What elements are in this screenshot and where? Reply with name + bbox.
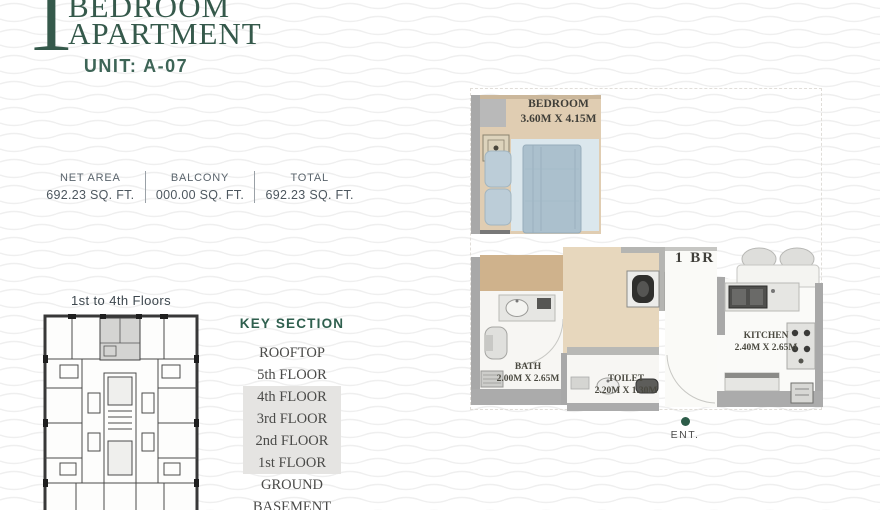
brochure-page: 1 BEDROOM APARTMENT UNIT: A-07 NET AREA … (0, 0, 880, 510)
unit-type-label: 1 BR (659, 249, 731, 269)
room-dimensions: 2.40M X 2.65M (723, 342, 809, 354)
toilet-label: TOILET 2.20M X 1.30M (576, 373, 676, 398)
room-name: BATH (483, 361, 573, 373)
entrance-label: ENT. (655, 429, 715, 441)
kitchen-area (717, 248, 823, 407)
stat-label: TOTAL (257, 172, 362, 184)
key-plan-caption: 1st to 4th Floors (42, 293, 200, 308)
room-name: BEDROOM (511, 97, 606, 112)
entrance-marker: ENT. (655, 417, 715, 441)
stat-label: BALCONY (148, 172, 253, 184)
stat-total: TOTAL 692.23 SQ. FT. (254, 171, 364, 203)
entrance-dot-icon (681, 417, 690, 426)
key-section-title: KEY SECTION (239, 316, 345, 331)
bedroom-label: BEDROOM 3.60M X 4.15M (511, 97, 606, 127)
stat-balcony: BALCONY 000.00 SQ. FT. (145, 171, 255, 203)
room-name: KITCHEN (723, 330, 809, 342)
area-stats: NET AREA 692.23 SQ. FT. BALCONY 000.00 S… (36, 171, 364, 203)
room-dimensions: 2.20M X 1.30M (576, 385, 676, 397)
room-name: TOILET (576, 373, 676, 385)
stat-net-area: NET AREA 692.23 SQ. FT. (36, 171, 145, 203)
floor-row-rooftop: ROOFTOP (243, 342, 341, 364)
building-key-plan (42, 313, 200, 510)
highlighted-unit (100, 318, 140, 360)
floor-row-2nd: 2nd FLOOR (243, 430, 341, 452)
stat-value: 000.00 SQ. FT. (148, 188, 253, 202)
key-section-floor-list: ROOFTOP 5th FLOOR 4th FLOOR 3rd FLOOR 2n… (243, 342, 341, 510)
floor-row-ground: GROUND (243, 474, 341, 496)
stat-label: NET AREA (38, 172, 143, 184)
room-dimensions: 3.60M X 4.15M (511, 112, 606, 127)
unit-label: UNIT: A-07 (30, 56, 242, 77)
room-dimensions: 2.00M X 2.65M (483, 373, 573, 385)
floor-row-basement: BASEMENT (243, 496, 341, 510)
apartment-floor-plan: BEDROOM 3.60M X 4.15M 1 BR BATH 2.00M X … (470, 88, 822, 410)
floor-row-5th: 5th FLOOR (243, 364, 341, 386)
floor-row-3rd: 3rd FLOOR (243, 408, 341, 430)
bath-label: BATH 2.00M X 2.65M (483, 361, 573, 386)
floor-row-4th: 4th FLOOR (243, 386, 341, 408)
stat-value: 692.23 SQ. FT. (257, 188, 362, 202)
page-title: BEDROOM APARTMENT (68, 0, 262, 47)
floor-row-1st: 1st FLOOR (243, 452, 341, 474)
stat-value: 692.23 SQ. FT. (38, 188, 143, 202)
title-line-apartment: APARTMENT (68, 20, 262, 47)
kitchen-label: KITCHEN 2.40M X 2.65M (723, 330, 809, 355)
